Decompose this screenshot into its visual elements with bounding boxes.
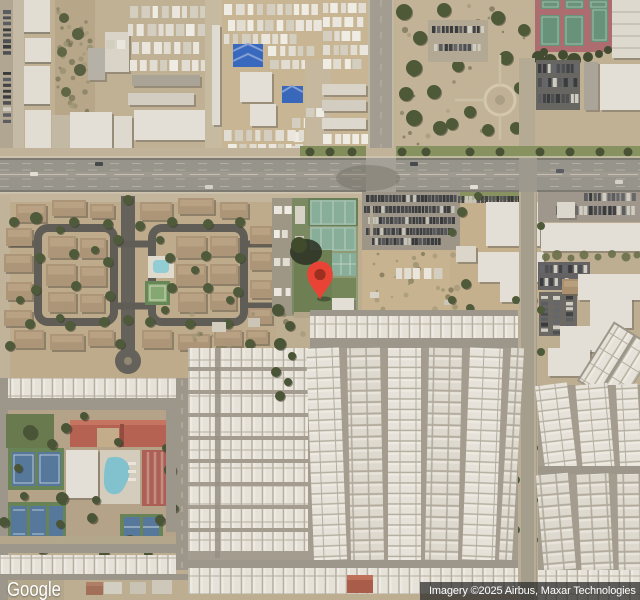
svg-text:Google: Google	[7, 578, 61, 600]
svg-text:Imagery ©2025 Airbus, Maxar Te: Imagery ©2025 Airbus, Maxar Technologies	[429, 585, 636, 597]
